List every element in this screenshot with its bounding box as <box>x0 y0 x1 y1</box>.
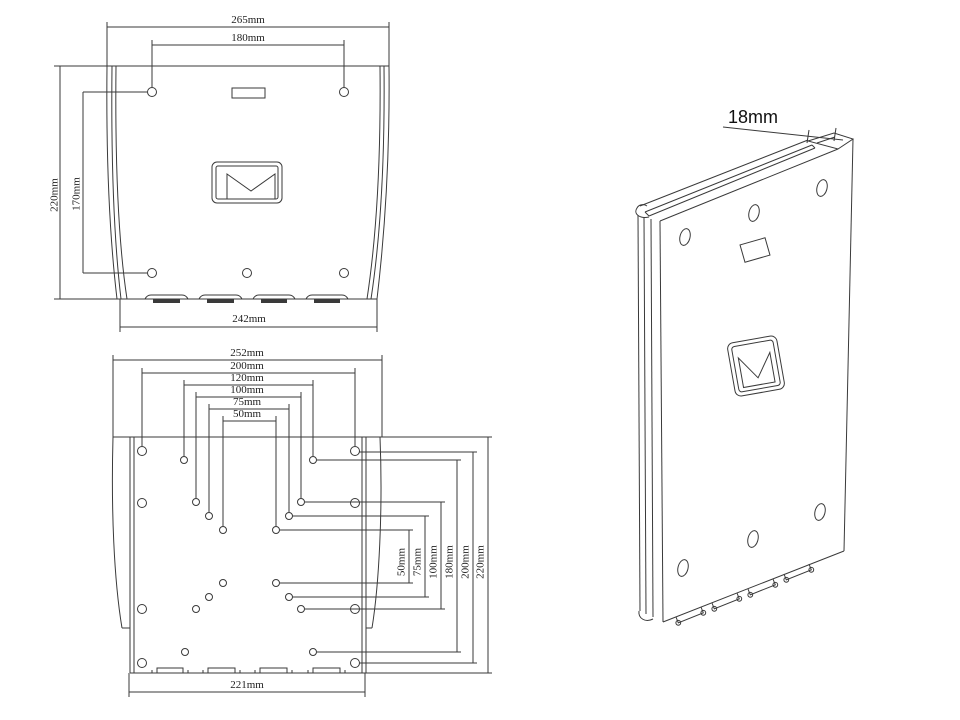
front-view-drawing <box>54 22 389 332</box>
vesa-view-drawing <box>112 355 492 697</box>
dim-label-221mm: 221mm <box>230 680 264 691</box>
dim-label-75mm-top: 75mm <box>233 397 261 408</box>
technical-drawing-canvas <box>0 0 960 720</box>
dim-label-120mm: 120mm <box>230 373 264 384</box>
iso-view-drawing <box>636 127 853 625</box>
dim-label-200mm-right: 200mm <box>461 545 472 579</box>
dim-label-75mm-right: 75mm <box>413 548 424 576</box>
dim-label-180mm-right: 180mm <box>445 545 456 579</box>
dim-label-265mm: 265mm <box>231 15 265 26</box>
dim-label-50mm-right: 50mm <box>397 548 408 576</box>
front-mounting-holes <box>148 88 349 278</box>
iso-bottom-serrated-edge <box>663 551 844 625</box>
dim-label-220mm-right: 220mm <box>476 545 487 579</box>
brand-logo-front <box>212 162 282 203</box>
brand-logo-iso <box>727 335 786 397</box>
dim-label-200mm-top: 200mm <box>230 361 264 372</box>
dim-label-170mm: 170mm <box>72 177 83 211</box>
dim-label-50mm-top: 50mm <box>233 409 261 420</box>
front-top-slot <box>232 88 265 98</box>
dim-label-220mm-front: 220mm <box>50 178 61 212</box>
engineering-drawing-page: 265mm 180mm 220mm 170mm 242mm 252mm 200m… <box>0 0 960 720</box>
dim-label-100mm-right: 100mm <box>429 545 440 579</box>
dim-label-100mm-top: 100mm <box>230 385 264 396</box>
iso-mounting-holes <box>676 179 829 578</box>
iso-top-slot <box>740 238 770 262</box>
dim-label-252mm: 252mm <box>230 348 264 359</box>
front-dimension-lines <box>60 22 389 332</box>
vesa-mounting-holes <box>138 447 360 668</box>
dim-label-242mm: 242mm <box>232 314 266 325</box>
vesa-bottom-slots <box>152 668 345 673</box>
vesa-right-dimension-lines <box>280 437 488 673</box>
iso-top-right-cap <box>808 133 853 149</box>
dim-label-180mm: 180mm <box>231 33 265 44</box>
dim-label-18mm: 18mm <box>728 108 778 126</box>
